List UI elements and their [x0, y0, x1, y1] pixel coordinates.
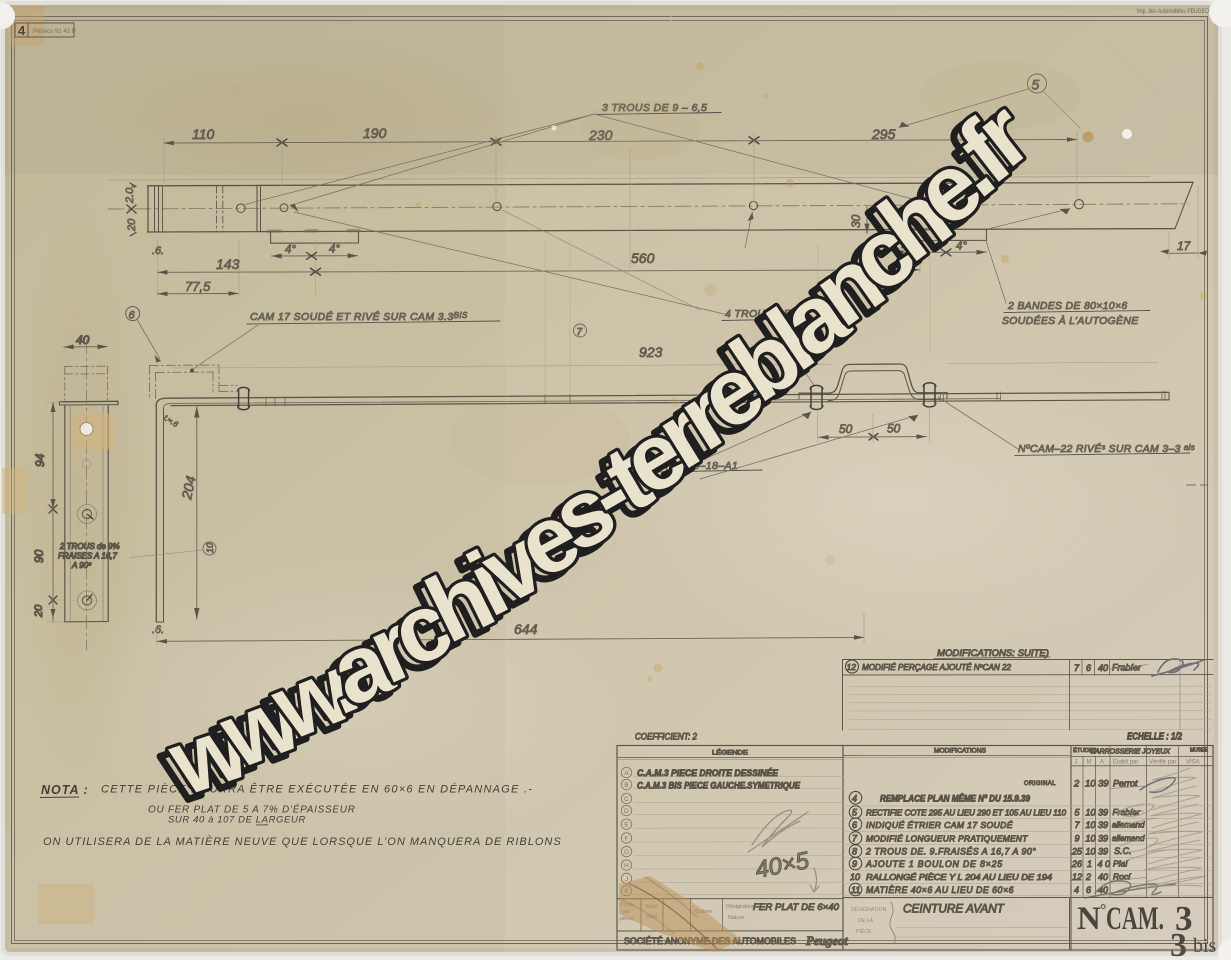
svg-text:6: 6	[1086, 885, 1091, 895]
svg-text:PIÈCE: PIÈCE	[856, 928, 872, 935]
svg-text:AJOUTE 1 BOULON DE 8×25: AJOUTE 1 BOULON DE 8×25	[865, 859, 1003, 869]
svg-text:39: 39	[1098, 847, 1108, 857]
svg-text:39: 39	[1098, 820, 1108, 830]
svg-text:E: E	[624, 822, 629, 829]
svg-text:S.C.: S.C.	[1114, 846, 1132, 856]
svg-text:ORIGINAL: ORIGINAL	[1024, 781, 1056, 787]
svg-text:Peugeot: Peugeot	[806, 934, 848, 948]
svg-text:MUSEE: MUSEE	[1190, 748, 1208, 754]
svg-text:Nature: Nature	[728, 915, 745, 921]
svg-text:A 90º: A 90º	[71, 561, 92, 570]
svg-text:50: 50	[839, 422, 853, 436]
svg-text:190: 190	[363, 125, 387, 141]
svg-text:2.0,: 2.0,	[124, 185, 136, 204]
svg-text:4°: 4°	[285, 244, 296, 256]
svg-text:.6.: .6.	[152, 624, 164, 636]
svg-text:10: 10	[1085, 779, 1096, 790]
svg-text:Désignation: Désignation	[726, 904, 755, 910]
svg-text:143: 143	[216, 256, 240, 272]
svg-text:40: 40	[1098, 872, 1108, 882]
svg-text:4: 4	[1074, 885, 1079, 895]
svg-text:F: F	[625, 835, 629, 842]
svg-text:10: 10	[205, 543, 215, 553]
svg-text:MODIFICATIONS: MODIFICATIONS	[934, 748, 986, 755]
svg-text:Vérifié par: Vérifié par	[1149, 760, 1176, 766]
svg-text:39: 39	[1098, 834, 1108, 844]
svg-text:allemand: allemand	[1112, 834, 1145, 843]
svg-text:2 TROUS de 9%: 2 TROUS de 9%	[59, 542, 120, 551]
svg-text:MODIFIÉ LONGUEUR PRATIQUEMENT: MODIFIÉ LONGUEUR PRATIQUEMENT	[866, 834, 1028, 844]
svg-text:D: D	[624, 808, 629, 815]
svg-text:LÉGENDE: LÉGENDE	[712, 748, 749, 757]
svg-text:REMPLACE PLAN MÊME Nº DU 15.: REMPLACE PLAN MÊME Nº DU 15.9.39	[880, 793, 1031, 804]
svg-text:B: B	[624, 782, 628, 789]
svg-text:10: 10	[1086, 808, 1096, 818]
svg-text:1: 1	[1087, 859, 1092, 869]
svg-text:7: 7	[577, 327, 583, 338]
svg-text:2: 2	[1073, 779, 1080, 790]
svg-text:CAM.: CAM.	[1106, 901, 1164, 937]
svg-text:8: 8	[852, 847, 857, 857]
svg-text:560: 560	[631, 250, 655, 266]
svg-text:4: 4	[18, 23, 26, 38]
svg-text:ECHELLE : 1/2: ECHELLE : 1/2	[1127, 732, 1182, 743]
svg-text:C.A.M.3 PIECE DROITE DESSINÉE: C.A.M.3 PIECE DROITE DESSINÉE	[637, 768, 779, 779]
svg-text:10: 10	[1086, 834, 1096, 844]
svg-text:INDIQUÉ ÉTRIER CAM 17 SOUDÉ: INDIQUÉ ÉTRIER CAM 17 SOUDÉ	[866, 820, 1013, 830]
svg-text:12: 12	[847, 662, 857, 672]
svg-text:4°: 4°	[329, 244, 340, 256]
svg-text:C.A.M.3 BIS PIECE GAUCHE.SYMET: C.A.M.3 BIS PIECE GAUCHE.SYMETRIQUE	[637, 781, 800, 792]
svg-text:CARROSSERIE JOYEUX: CARROSSERIE JOYEUX	[1090, 749, 1170, 756]
svg-text:SOUDÉES À L’AUTOGÈNE: SOUDÉES À L’AUTOGÈNE	[1002, 314, 1139, 327]
svg-text:M: M	[1087, 760, 1092, 766]
svg-text:10: 10	[850, 872, 860, 882]
svg-text:10: 10	[1086, 820, 1096, 830]
svg-text:DÉSIGNATION: DÉSIGNATION	[851, 906, 887, 913]
svg-text:4 0: 4 0	[1098, 859, 1111, 869]
svg-text:J: J	[1075, 760, 1078, 766]
svg-text:Imp. des Automobiles PEUGEOT.: Imp. des Automobiles PEUGEOT.	[1137, 9, 1213, 15]
svg-text:39: 39	[1098, 808, 1108, 818]
svg-text:Frabíer: Frabíer	[1112, 663, 1142, 673]
svg-text:Etabli par: Etabli par	[1113, 760, 1138, 766]
svg-text:N: N	[1077, 901, 1101, 937]
svg-text:6: 6	[1086, 663, 1091, 673]
svg-text:2 TROUS DE. 9.FRAISÉS A 16,7: 2 TROUS DE. 9.FRAISÉS A 16,7 A 90°	[865, 847, 1036, 857]
svg-text:6: 6	[852, 820, 857, 830]
svg-text:4: 4	[852, 793, 857, 803]
svg-text:295: 295	[871, 126, 896, 142]
svg-text:17: 17	[1177, 239, 1192, 253]
svg-text:94: 94	[33, 453, 47, 467]
svg-text:6: 6	[129, 310, 136, 322]
svg-text:110: 110	[192, 126, 215, 142]
svg-text:.6.: .6.	[152, 245, 164, 257]
svg-text:40: 40	[1098, 663, 1108, 673]
svg-text:RECTIFIE COTE 295 AU LIEU 290: RECTIFIE COTE 295 AU LIEU 290 ET 105 AU …	[866, 809, 1067, 818]
svg-text:26: 26	[1071, 859, 1082, 869]
svg-text:90: 90	[32, 549, 46, 563]
svg-text:A: A	[624, 770, 629, 777]
svg-text:12: 12	[1072, 872, 1082, 882]
svg-text:39: 39	[1098, 779, 1109, 790]
svg-text:RALLONGÉ PIÈCE Y L 204 AU LIEU: RALLONGÉ PIÈCE Y L 204 AU LIEU DE 194	[866, 873, 1053, 882]
svg-text:Pébéco 91 43 P: Pébéco 91 43 P	[33, 29, 76, 35]
svg-text:FRAISES A 16,7: FRAISES A 16,7	[58, 552, 118, 561]
svg-text:H: H	[624, 863, 629, 870]
svg-text:10: 10	[1086, 847, 1096, 857]
svg-text:FER PLAT DE 6×40: FER PLAT DE 6×40	[753, 902, 840, 913]
svg-text:25: 25	[1071, 847, 1083, 857]
svg-text:9: 9	[1075, 834, 1080, 844]
svg-text:77,5: 77,5	[185, 279, 211, 294]
svg-text:VISA: VISA	[1186, 760, 1200, 766]
svg-text:MATIÈRE 40×6 AU LIEU DE 60×6: MATIÈRE 40×6 AU LIEU DE 60×6	[866, 885, 1014, 895]
svg-text:11: 11	[851, 885, 860, 895]
svg-text:allemand: allemand	[1112, 820, 1145, 829]
svg-text:DE LA: DE LA	[858, 918, 874, 924]
svg-text:MODIFIÉ PERÇAGE AJOUTÉ NºCAN 2: MODIFIÉ PERÇAGE AJOUTÉ NºCAN 22	[862, 662, 1011, 672]
svg-text:9: 9	[852, 859, 857, 869]
svg-text:40: 40	[76, 333, 90, 347]
svg-text:COEFFICIENT: 2: COEFFICIENT: 2	[635, 732, 697, 742]
svg-text:2 BANDES DE 80×10×6: 2 BANDES DE 80×10×6	[1007, 300, 1128, 312]
svg-text:CEINTURE AVANT: CEINTURE AVANT	[903, 902, 1006, 916]
svg-text:20: 20	[126, 218, 138, 232]
svg-text:ON UTILISERA DE LA MATIÈRE NE: ON UTILISERA DE LA MATIÈRE NEUVE QUE LOR…	[43, 835, 562, 848]
svg-text:J: J	[625, 876, 628, 883]
svg-text:G: G	[624, 849, 629, 856]
svg-text:2: 2	[1085, 872, 1091, 882]
svg-text:A: A	[1100, 760, 1104, 766]
svg-text:NOTA :: NOTA :	[41, 783, 89, 797]
svg-text:923: 923	[639, 344, 663, 360]
svg-text:CAM 17 SOUDÉ ET RIVÉ SUR CAM: CAM 17 SOUDÉ ET RIVÉ SUR CAM 3.3BIS	[250, 310, 468, 323]
svg-text:CETTE PIÈCE POURRA ÊTRE EXÉCUT: CETTE PIÈCE POURRA ÊTRE EXÉCUTÉE EN 60×6…	[101, 783, 533, 796]
svg-text:C: C	[624, 796, 629, 803]
svg-text:20: 20	[33, 604, 45, 618]
